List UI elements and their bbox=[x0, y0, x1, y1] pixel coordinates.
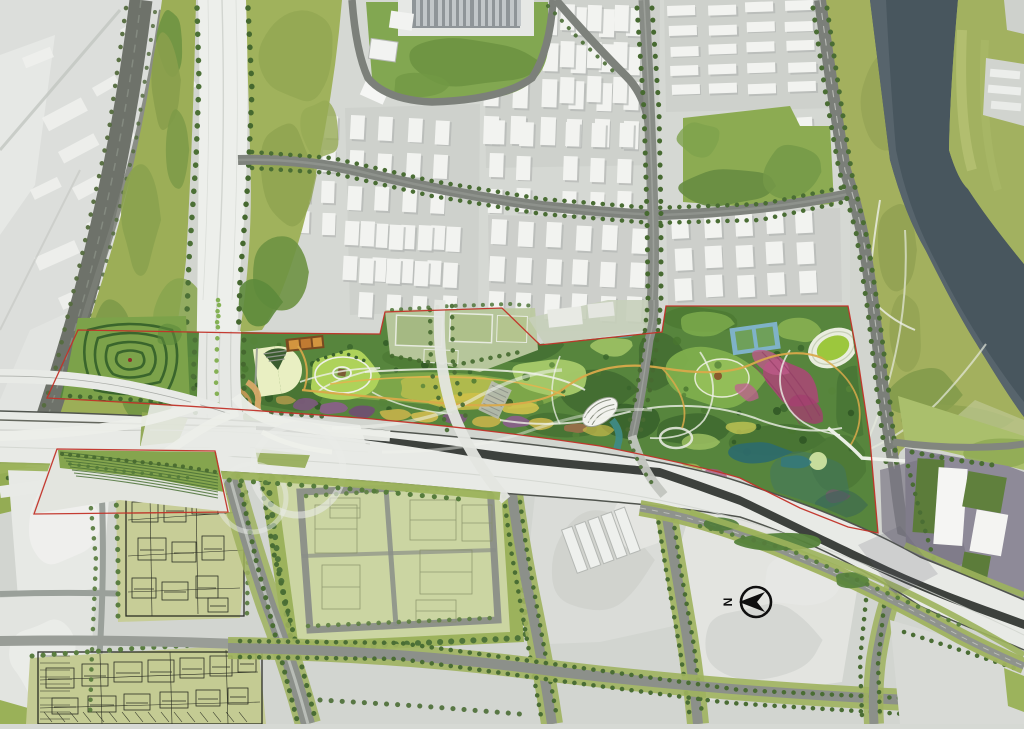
svg-text:N: N bbox=[721, 598, 735, 607]
